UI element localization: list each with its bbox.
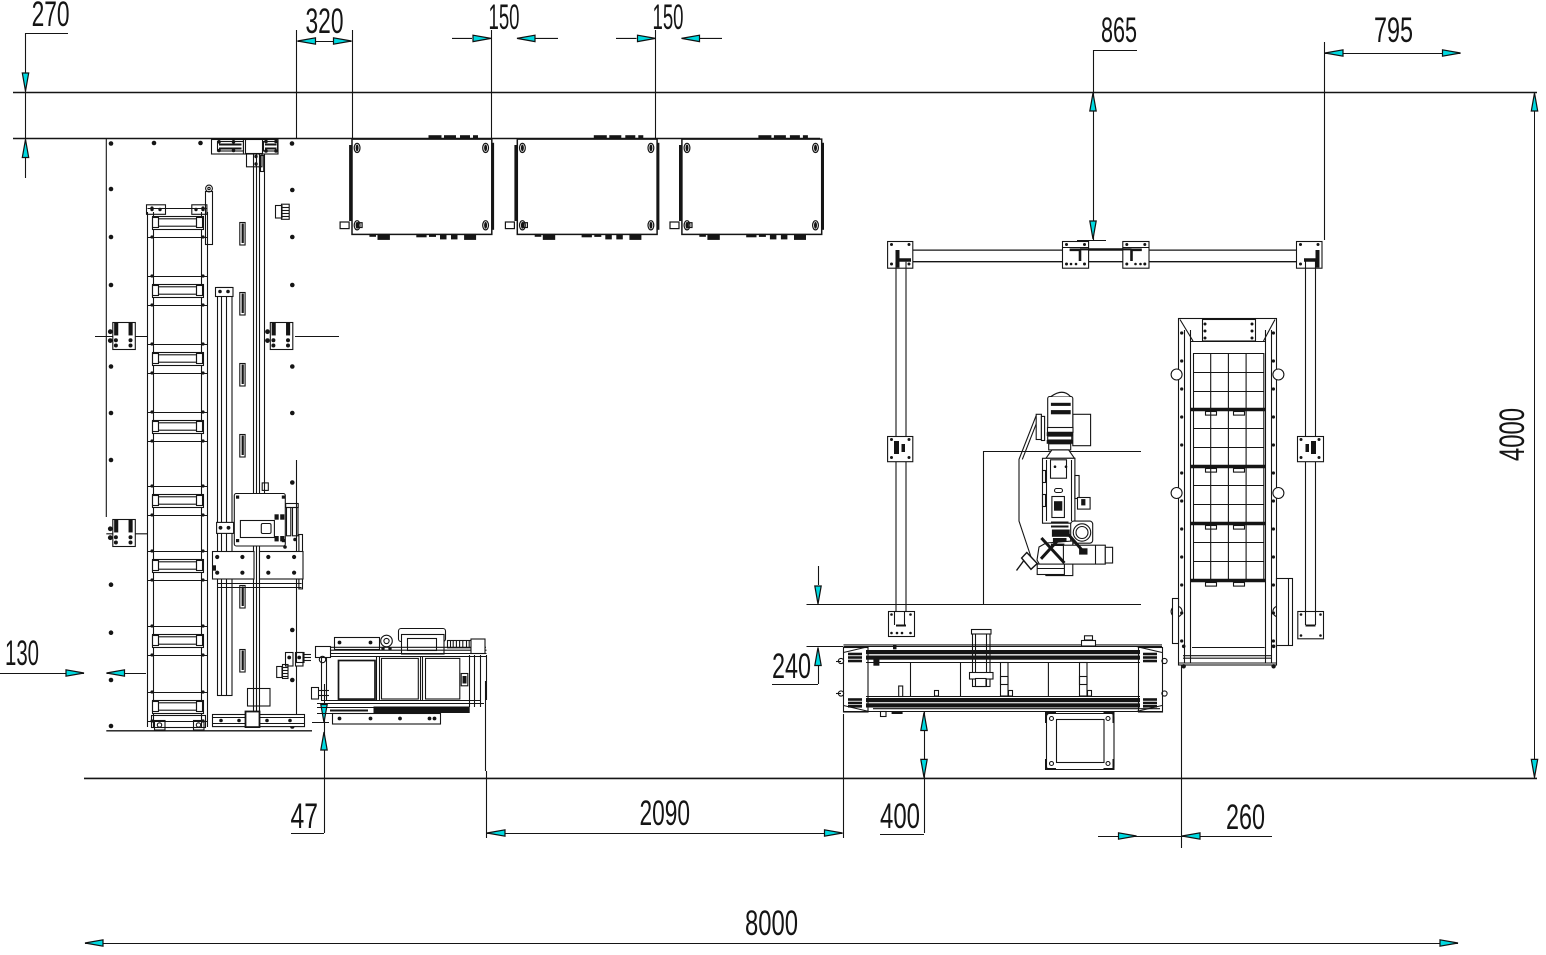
svg-text:795: 795 [1374, 11, 1413, 50]
svg-text:150: 150 [653, 0, 684, 37]
svg-text:150: 150 [489, 0, 520, 37]
svg-text:320: 320 [306, 2, 344, 41]
svg-text:260: 260 [1226, 798, 1265, 837]
svg-text:270: 270 [32, 0, 70, 34]
svg-text:8000: 8000 [745, 904, 798, 943]
svg-text:4000: 4000 [1493, 408, 1532, 461]
svg-text:2090: 2090 [640, 794, 691, 833]
svg-text:130: 130 [5, 634, 39, 673]
svg-text:47: 47 [291, 797, 319, 836]
svg-text:400: 400 [880, 797, 920, 836]
svg-text:240: 240 [772, 647, 811, 686]
svg-text:865: 865 [1101, 11, 1137, 50]
